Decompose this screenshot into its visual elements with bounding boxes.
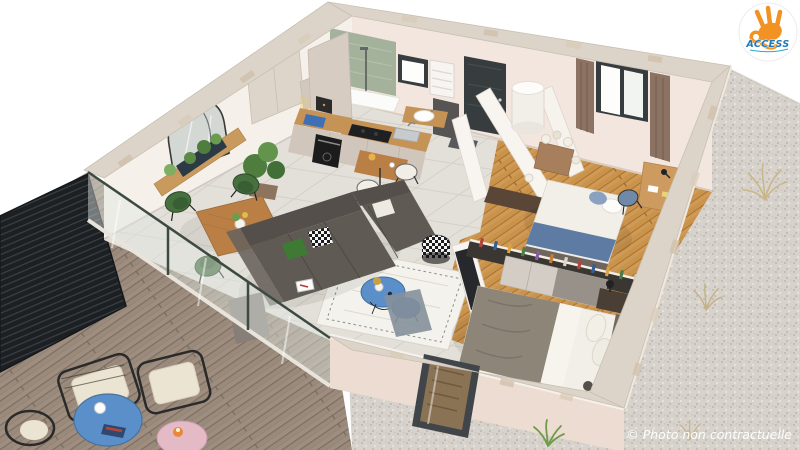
flower-vase-icon (232, 213, 240, 221)
terrace-table-blue (74, 394, 142, 446)
access-logo: ACCESS (739, 3, 797, 61)
water-heater (512, 82, 544, 135)
shower-head-icon (360, 47, 368, 50)
pouf-houndstooth (422, 235, 450, 264)
dried-plant-icon (373, 277, 381, 285)
teddy-bear-icon (572, 156, 580, 164)
door-handle-icon (498, 98, 501, 101)
terrace-table-pink (157, 421, 207, 450)
apartment-3d-render: ACCESS © Photo non contractuelle (0, 0, 800, 450)
oven (312, 134, 342, 168)
logo-brand-text: ACCESS (745, 39, 789, 50)
scene: ACCESS © Photo non contractuelle (0, 0, 800, 450)
fruit-bowl-icon (369, 154, 376, 161)
towel-radiator (430, 60, 454, 98)
coffee-cup-icon (95, 403, 106, 414)
watermark-text: © Photo non contractuelle (626, 427, 792, 442)
